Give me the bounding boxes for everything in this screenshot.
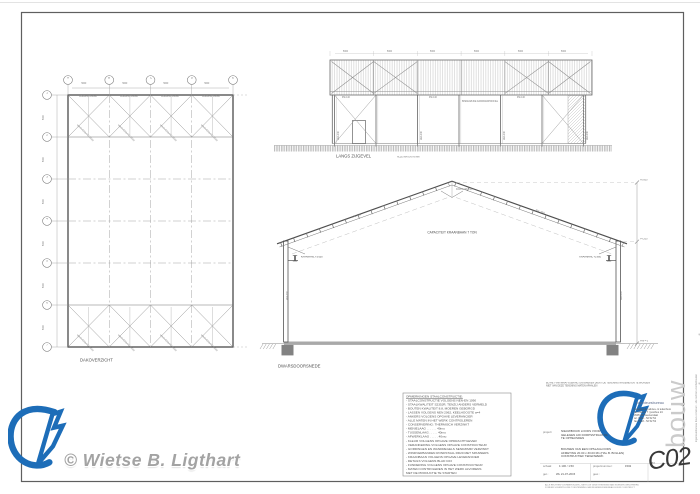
grid-bubble-label: D <box>188 77 196 80</box>
watermark-logo <box>11 409 63 465</box>
dimension-text: 5000 <box>204 82 210 85</box>
project-label: project: <box>543 431 552 434</box>
column-label: HEA 240 <box>503 131 506 140</box>
member-label: GORDING 160/60 <box>120 95 138 98</box>
grid-bubble-label: E <box>229 77 237 80</box>
column-label: HEA 300 <box>620 291 623 300</box>
apex-label: KOPPLAAT t=20 <box>456 188 472 191</box>
dimension-text: 5000 <box>517 50 524 53</box>
grid-bubble-label: 7 <box>43 344 51 347</box>
column-label: HEA 240 <box>337 131 340 140</box>
crane-rail-label: KRAANRAIL +3.600 <box>565 256 601 259</box>
scale-label: schaal: <box>543 465 552 468</box>
dimension-text: 5000 <box>81 82 87 85</box>
column-label: HEA 240 <box>586 131 589 140</box>
plan-title: DAKOVERZICHT <box>80 358 113 363</box>
level-label: +4.200 <box>640 238 647 241</box>
dimension-text: 5000 <box>122 82 128 85</box>
drawn-label: get.: <box>543 473 548 476</box>
brand-type-label: ingenieursbureau <box>636 401 664 405</box>
drawn-value: WL 21-07-2015 <box>556 473 575 476</box>
member-label: IPE 140 <box>342 96 349 99</box>
side-elevation-drawing <box>274 51 612 152</box>
member-label: IPE 140 <box>429 96 436 99</box>
level-label: +6.600 <box>640 179 647 182</box>
dimension-text: 5000 <box>42 157 45 162</box>
column-label: HEA 240 <box>420 131 423 140</box>
wall-note: BINNENZIJDE DAMWANDPROFIEL <box>462 100 498 103</box>
level-label: Peil = 0 <box>640 340 648 343</box>
grid-bubble-label: A <box>64 77 72 80</box>
dimension-text: 5000 <box>42 283 45 288</box>
titleblock-disclaimer: BIJ HET VAN MAATVOERING ONTBREKEN DIENT … <box>546 382 678 388</box>
dimension-text: 5000 <box>42 241 45 246</box>
revised-label: gew.: <box>593 473 600 476</box>
grid-bubble-label: 2 <box>43 134 51 137</box>
grid-bubble-label: 4 <box>43 218 51 221</box>
dimension-text: 5000 <box>163 82 169 85</box>
scale-value: 1:100 / 1:50 <box>559 465 574 468</box>
watermark-copyright: © Wietse B. Ligthart <box>64 450 240 471</box>
dimension-text: 5000 <box>386 50 393 53</box>
elevation-title: LANGS ZIJGEVEL <box>336 154 371 159</box>
dimension-text: 5000 <box>42 115 45 120</box>
roof-plan-drawing <box>43 76 249 352</box>
notes-line: MET DE PRODUCTIE TE STARTEN <box>406 471 511 475</box>
linework-canvas <box>0 0 700 494</box>
member-label: GORDING 160/60 <box>79 95 97 98</box>
dimension-text: 5000 <box>560 50 567 53</box>
dimension-text: 5000 <box>429 50 436 53</box>
dimension-text: 5000 <box>42 325 45 330</box>
member-label: GORDING 160/60 <box>202 95 220 98</box>
dimension-text: 5000 <box>473 50 480 53</box>
section-title: DWARSDOORSNEDE <box>278 364 320 369</box>
elevation-note: ALLE MATEN IN MM <box>397 156 419 159</box>
projectnumber-label: projectnummer: <box>593 465 612 468</box>
member-label: GORDING 160/60 <box>161 95 179 98</box>
grid-bubble-label: 5 <box>43 260 51 263</box>
brand-vertical-text: bouw construct <box>661 262 691 448</box>
column-label: HEA 300 <box>286 291 289 300</box>
grid-bubble-label: 1 <box>43 92 51 95</box>
grid-bubble-label: C <box>147 77 155 80</box>
crane-rail-label: KRAANRAIL +3.600 <box>301 256 323 259</box>
cross-section-drawing <box>260 181 658 356</box>
projectnumber-value: 1502 <box>625 465 631 468</box>
titleblock-footer: ALLE RECHTEN VOORBEHOUDEN - NIETS UIT DE… <box>545 484 692 489</box>
project-lines: NIEUWBOUW LOODS VOOR GELEGEN A/D DORPSST… <box>561 430 670 441</box>
grid-bubble-label: 6 <box>43 302 51 305</box>
side-note-vertical: ingenieursbureau bouw construct · alle r… <box>695 374 698 442</box>
footer-line: ZONDER SCHRIFTELIJKE TOESTEMMING VAN ING… <box>545 486 692 488</box>
grid-bubble-label: B <box>105 77 113 80</box>
dimension-text: 5000 <box>42 199 45 204</box>
grid-bubble-label: 3 <box>43 176 51 179</box>
project-line: TE OPHEUSDEN <box>561 437 670 441</box>
member-label: IPE 140 <box>517 96 524 99</box>
crane-capacity-note: CAPACITEIT KRAANBAAN 7 TON <box>392 231 512 235</box>
drawing-sheet: A B C D E 1 2 3 4 5 6 7 5000 5000 5000 5… <box>0 0 700 494</box>
notes-block: OPMERKINGEN STAALCONSTRUCTIE: - STAALCON… <box>406 395 511 475</box>
dimension-text: 5000 <box>342 50 349 53</box>
